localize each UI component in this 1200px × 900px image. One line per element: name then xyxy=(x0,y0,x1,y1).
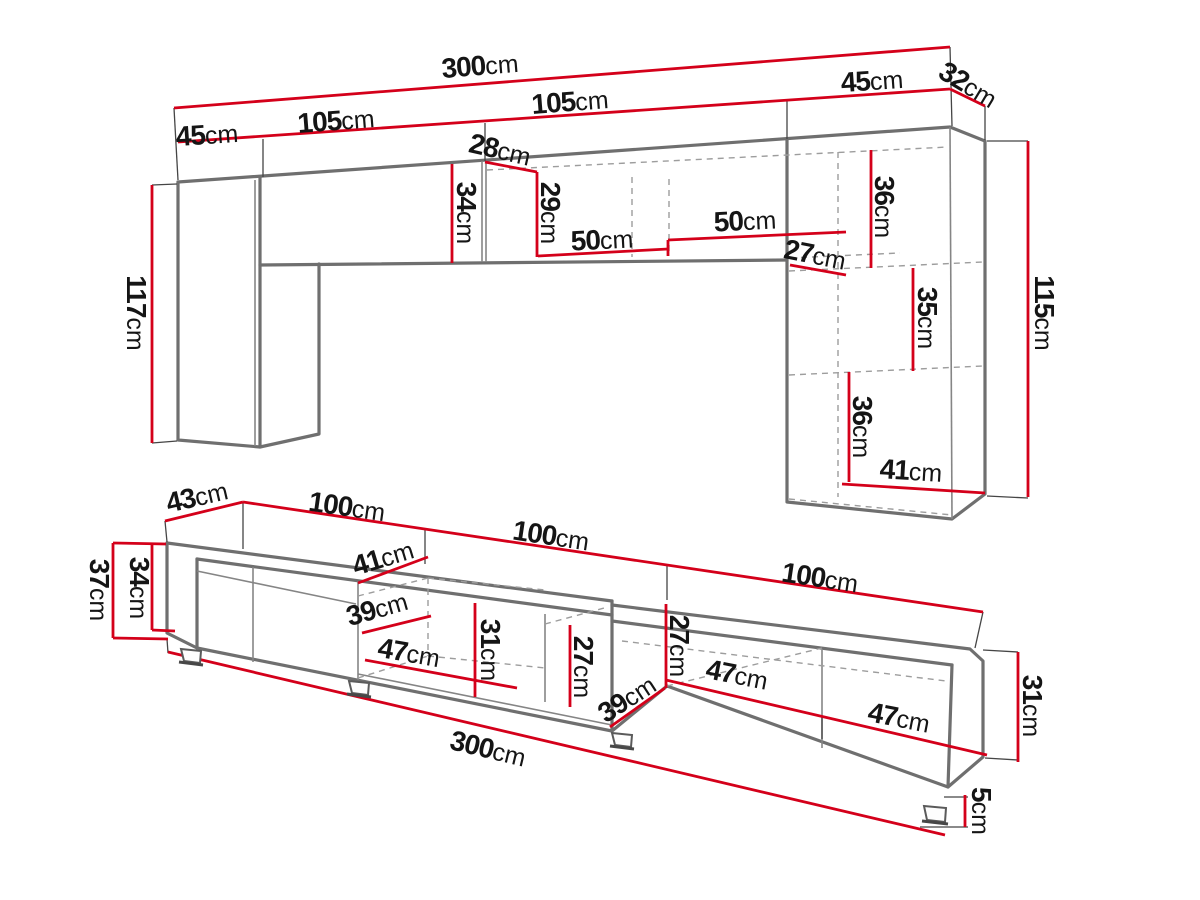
dimension-label-wall-unit-300-top: 300cm xyxy=(440,49,519,83)
dimension-unit: cm xyxy=(742,206,777,236)
dimension-unit: cm xyxy=(451,211,479,244)
dimension-label-tv-stand-5-feet: 5cm xyxy=(967,787,995,835)
dimension-label-wall-unit-50-left: 50cm xyxy=(570,224,634,255)
dimension-label-tv-stand-31-mid: 31cm xyxy=(476,619,504,681)
dimension-label-wall-unit-36-lower: 36cm xyxy=(848,396,876,458)
dimension-unit: cm xyxy=(475,648,503,681)
dimension-label-wall-unit-32-depth: 32cm xyxy=(934,57,1002,113)
dimension-unit: cm xyxy=(568,665,596,698)
dimension-value: 35 xyxy=(912,287,943,316)
dimension-value: 41 xyxy=(879,453,910,486)
dimension-value: 100 xyxy=(307,486,355,523)
dimension-label-tv-stand-41-door: 41cm xyxy=(349,535,417,580)
dimension-unit: cm xyxy=(810,242,848,276)
dimension-value: 36 xyxy=(869,176,900,205)
dimension-label-wall-unit-115-height: 115cm xyxy=(1030,275,1058,351)
dimension-value: 45 xyxy=(175,119,206,152)
dimension-value: 36 xyxy=(847,396,878,425)
dimension-label-tv-stand-100-third: 100cm xyxy=(780,558,860,597)
dimension-unit: cm xyxy=(340,105,375,136)
dimension-label-wall-unit-35-middle: 35cm xyxy=(913,287,941,349)
dimension-unit: cm xyxy=(350,495,387,527)
dimension-value: 31 xyxy=(1017,675,1048,704)
dimension-label-wall-unit-36-upper: 36cm xyxy=(870,176,898,238)
dimension-value: 300 xyxy=(447,724,497,764)
dimension-label-wall-unit-50-right: 50cm xyxy=(713,205,777,236)
dimension-value: 50 xyxy=(570,224,601,256)
dimension-label-tv-stand-100-first: 100cm xyxy=(307,488,387,526)
dimension-unit: cm xyxy=(869,66,904,96)
dimension-label-tv-stand-31-right: 31cm xyxy=(1018,675,1046,737)
dimension-value: 117 xyxy=(121,275,152,317)
dimension-value: 34 xyxy=(451,182,482,211)
dimension-unit: cm xyxy=(377,536,417,573)
dimension-unit: cm xyxy=(599,225,634,255)
dimension-label-tv-stand-27-mid: 27cm xyxy=(569,636,597,698)
dimension-label-tv-stand-34-height: 34cm xyxy=(125,557,153,619)
dimension-value: 100 xyxy=(511,514,559,551)
dimension-value: 27 xyxy=(664,615,695,644)
dimension-unit: cm xyxy=(1029,317,1057,350)
dimension-unit: cm xyxy=(847,425,875,458)
dimension-label-wall-unit-45-right: 45cm xyxy=(840,65,904,97)
dimension-label-wall-unit-29-height: 29cm xyxy=(536,182,564,244)
dimension-label-tv-stand-43-depth: 43cm xyxy=(163,476,230,517)
dimension-label-tv-stand-300-bottom: 300cm xyxy=(447,726,528,771)
dimension-unit: cm xyxy=(490,738,529,773)
dimension-value: 27 xyxy=(568,636,599,665)
dimension-label-tv-stand-39-right-depth: 39cm xyxy=(593,670,661,728)
dimension-value: 31 xyxy=(475,619,506,648)
dimension-value: 29 xyxy=(535,182,566,211)
dimension-label-wall-unit-27-depth: 27cm xyxy=(782,235,849,274)
dimension-label-tv-stand-47-mid: 47cm xyxy=(376,634,442,672)
dimension-label-wall-unit-117-height: 117cm xyxy=(122,275,150,351)
dimension-label-tv-stand-39-mid-depth: 39cm xyxy=(343,587,411,631)
dimension-label-wall-unit-105-right: 105cm xyxy=(530,85,609,119)
dimension-label-tv-stand-47-right-upper: 47cm xyxy=(704,655,771,694)
dimension-value: 105 xyxy=(296,105,342,139)
dimension-unit: cm xyxy=(664,644,692,677)
dimension-value: 50 xyxy=(713,205,744,237)
dimension-value: 37 xyxy=(84,559,115,588)
dimension-value: 34 xyxy=(124,557,155,586)
dimension-unit: cm xyxy=(124,586,152,619)
dimension-unit: cm xyxy=(84,588,112,621)
dimension-unit: cm xyxy=(732,662,770,696)
dimension-value: 5 xyxy=(966,787,997,802)
dimension-unit: cm xyxy=(574,86,609,117)
dimension-unit: cm xyxy=(1017,704,1045,737)
furniture-dimension-diagram: 300cm105cm45cm105cm45cm32cm28cm34cm29cm5… xyxy=(0,0,1200,900)
dimension-unit: cm xyxy=(535,211,563,244)
dimension-unit: cm xyxy=(823,566,860,599)
dimension-value: 105 xyxy=(530,86,576,120)
dimension-unit: cm xyxy=(894,705,932,739)
dimension-unit: cm xyxy=(371,588,411,624)
dimension-labels-layer: 300cm105cm45cm105cm45cm32cm28cm34cm29cm5… xyxy=(0,0,1200,900)
dimension-label-wall-unit-34-height: 34cm xyxy=(452,182,480,244)
dimension-unit: cm xyxy=(908,458,943,488)
dimension-label-tv-stand-37-height: 37cm xyxy=(85,559,113,621)
dimension-unit: cm xyxy=(495,137,534,172)
dimension-value: 300 xyxy=(440,50,486,84)
dimension-value: 45 xyxy=(840,65,871,98)
dimension-unit: cm xyxy=(121,317,149,350)
dimension-value: 100 xyxy=(780,556,828,593)
dimension-label-tv-stand-47-right-lower: 47cm xyxy=(866,698,933,737)
dimension-label-wall-unit-105-left: 105cm xyxy=(296,104,375,138)
dimension-unit: cm xyxy=(554,524,591,557)
dimension-label-wall-unit-28-depth: 28cm xyxy=(466,129,533,170)
dimension-unit: cm xyxy=(869,205,897,238)
dimension-label-tv-stand-100-second: 100cm xyxy=(511,516,591,555)
dimension-unit: cm xyxy=(912,316,940,349)
dimension-unit: cm xyxy=(966,802,994,835)
dimension-label-tv-stand-27-right: 27cm xyxy=(665,615,693,677)
dimension-unit: cm xyxy=(484,50,520,81)
dimension-label-wall-unit-45-left: 45cm xyxy=(175,119,239,151)
dimension-value: 115 xyxy=(1029,275,1060,317)
dimension-unit: cm xyxy=(192,477,231,512)
dimension-label-wall-unit-41-shelf: 41cm xyxy=(879,455,943,487)
dimension-unit: cm xyxy=(404,640,442,673)
dimension-unit: cm xyxy=(204,120,239,150)
